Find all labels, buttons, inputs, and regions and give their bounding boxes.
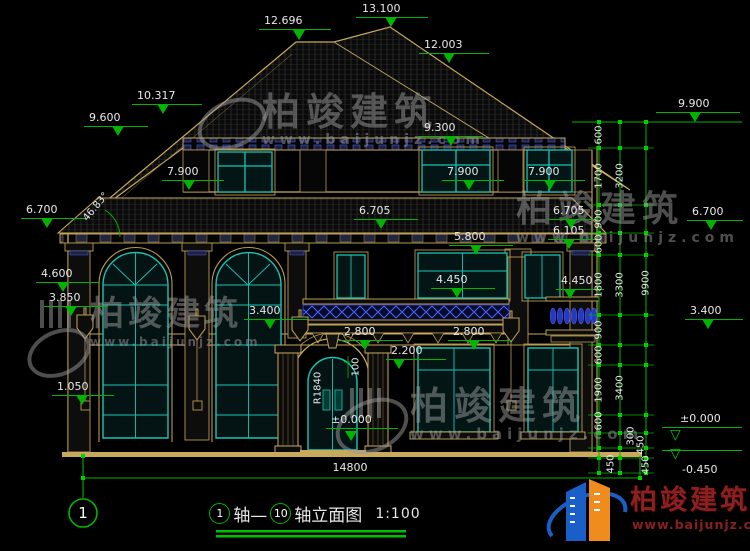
watermark-name: 柏竣建筑 bbox=[410, 386, 643, 426]
dim-dot bbox=[618, 120, 622, 124]
dim-dot bbox=[597, 456, 601, 460]
dim-dot bbox=[644, 363, 648, 367]
dim-dot bbox=[618, 363, 622, 367]
watermark-url: www.baijunjz.com bbox=[262, 132, 485, 148]
dim-dot bbox=[644, 431, 648, 435]
dim-dot bbox=[618, 253, 622, 257]
watermark: 柏竣建筑 www.baijunjz.com bbox=[262, 92, 485, 148]
dim-dot bbox=[618, 446, 622, 450]
brand-name: 柏竣建筑 bbox=[630, 478, 750, 517]
title-axis-end: 10 bbox=[270, 503, 291, 524]
watermark-name: 柏竣建筑 bbox=[262, 92, 485, 132]
dim-dot bbox=[618, 146, 622, 150]
brand-url: www.baijunjz.com bbox=[632, 517, 750, 532]
watermark-url: www.baijunjz.com bbox=[516, 230, 739, 246]
title-axis-start: 1 bbox=[209, 503, 230, 524]
dim-dot bbox=[644, 413, 648, 417]
dim-dot bbox=[81, 476, 85, 480]
watermark: 柏竣建筑 www.baijunjz.com bbox=[90, 294, 261, 350]
watermark-url: www.baijunjz.com bbox=[90, 334, 261, 350]
dim-dot bbox=[597, 446, 601, 450]
watermark-logo-icon bbox=[350, 388, 386, 418]
dim-dot bbox=[597, 120, 601, 124]
dim-dot bbox=[644, 120, 648, 124]
title-scale: 1:100 bbox=[375, 506, 420, 522]
axis-bubble-number: 1 bbox=[69, 504, 97, 522]
second-floor-windows bbox=[334, 250, 563, 301]
dim-dot bbox=[618, 456, 622, 460]
cad-elevation-drawing: 柏竣建筑 www.baijunjz.com 柏竣建筑 www.baijunjz.… bbox=[0, 0, 750, 551]
dim-dot bbox=[597, 343, 601, 347]
title-text: 轴立面图 bbox=[294, 501, 362, 526]
dim-dot bbox=[644, 343, 648, 347]
dim-dot bbox=[618, 313, 622, 317]
dim-dot bbox=[618, 343, 622, 347]
dim-dot bbox=[597, 253, 601, 257]
watermark-name: 柏竣建筑 bbox=[516, 190, 739, 230]
dim-dot bbox=[644, 456, 648, 460]
dim-dot bbox=[597, 313, 601, 317]
overall-width-dim: 14800 bbox=[300, 461, 400, 474]
watermark-name: 柏竣建筑 bbox=[90, 294, 261, 334]
title-underline bbox=[216, 530, 406, 538]
title-text: 轴— bbox=[233, 501, 267, 526]
drawing-title: 1 轴— 10 轴立面图 1:100 bbox=[150, 501, 480, 526]
watermark-url: www.baijunjz.com bbox=[410, 426, 643, 442]
watermark-logo-icon bbox=[40, 300, 74, 328]
dim-dot bbox=[644, 446, 648, 450]
third-floor bbox=[183, 147, 592, 195]
watermark: 柏竣建筑 www.baijunjz.com bbox=[516, 190, 739, 246]
brand-logo: 柏竣建筑 www.baijunjz.com bbox=[546, 474, 750, 548]
dim-dot bbox=[597, 363, 601, 367]
dim-dot bbox=[597, 146, 601, 150]
dim-dot bbox=[644, 146, 648, 150]
watermark: 柏竣建筑 www.baijunjz.com bbox=[410, 386, 643, 442]
dim-dot bbox=[644, 253, 648, 257]
dim-dot bbox=[644, 313, 648, 317]
dim-dot bbox=[81, 454, 85, 458]
